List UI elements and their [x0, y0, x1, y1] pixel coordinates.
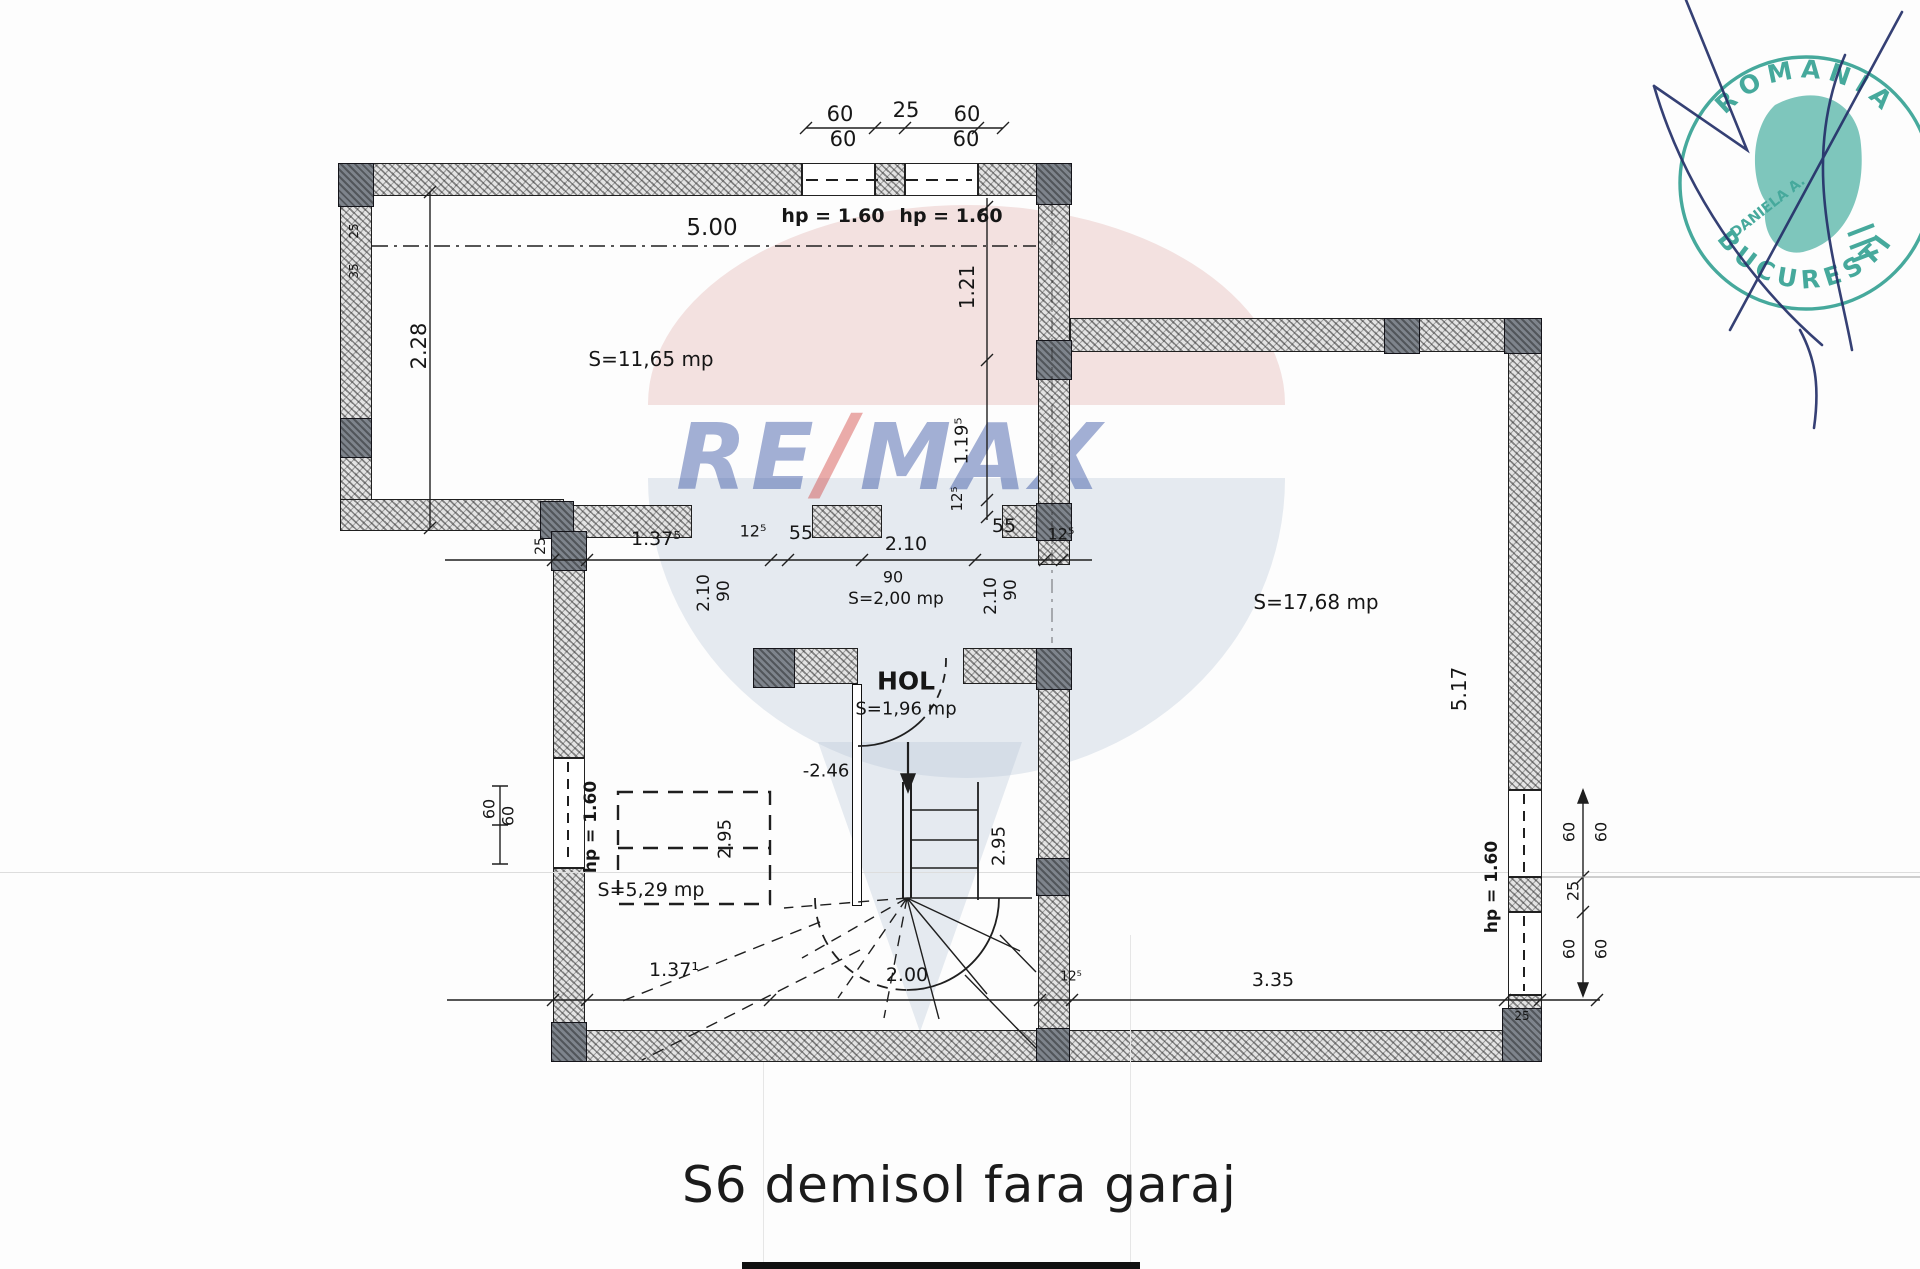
stamp-emblem [1755, 95, 1862, 252]
column-top-left [338, 163, 374, 207]
room-label-s1768: S=17,68 mp [1253, 590, 1378, 614]
dim-label: 25 [347, 223, 361, 238]
dim-ticks-vertical-center [981, 201, 993, 523]
room-label-s196: S=1,96 mp [855, 699, 956, 720]
remax-logo-slash: / [818, 392, 860, 514]
window-top-1 [802, 163, 875, 196]
dim-label: 12⁵ [1048, 525, 1075, 544]
dim-label: hp = 1.60 [899, 205, 1002, 227]
dim-label: 25 [1564, 881, 1583, 901]
svg-text:BUCURESTI: BUCURESTI [1712, 225, 1901, 295]
dim-label: 2.28 [407, 323, 431, 370]
dim-label: hp = 1.60 [1482, 841, 1502, 933]
dim-label: 12⁵ [948, 486, 966, 511]
svg-text:ROMANIA: ROMANIA [1709, 54, 1903, 119]
dim-label: 1.37¹ [649, 959, 699, 981]
wall-hall-north-right [963, 648, 1040, 684]
dim-label: 1.37⁵ [631, 528, 681, 550]
wall-bottom-upper-left-room [340, 499, 564, 531]
column-top-right-1 [1384, 318, 1420, 354]
wall-pier-top-windows [875, 163, 905, 196]
dim-label: 3.35 [1252, 969, 1294, 991]
dim-label: 5.00 [686, 215, 737, 241]
wall-central-lower [1038, 648, 1070, 1062]
column-lower-left-top [551, 531, 587, 571]
dim-label: 60 [480, 799, 499, 819]
stair-treads-straight [911, 810, 978, 868]
scan-fold-line-horizontal [0, 872, 1920, 873]
scan-fold-line-vertical-right [1130, 935, 1131, 1269]
room-label-s529: S=5,29 mp [598, 879, 705, 901]
dim-label: 55 [789, 522, 813, 544]
dim-label: 90 [883, 568, 903, 587]
dim-label: 2.95 [989, 826, 1010, 866]
dim-label: 35 [347, 263, 361, 278]
room-label-s1165: S=11,65 mp [588, 347, 713, 371]
wall-mid-segment-2 [812, 505, 882, 538]
dim-label: 1.19⁵ [952, 417, 973, 464]
signature [1654, 0, 1902, 428]
dim-label: 2.10 [981, 577, 1001, 615]
wall-right-upper [1508, 318, 1542, 790]
stamp-emblem-bars [1848, 225, 1878, 261]
dim-label: 12⁵ [740, 522, 767, 541]
wall-top-right-room [1070, 318, 1542, 352]
stair-winder-treads-left [784, 898, 907, 1018]
column-central-3 [1036, 648, 1072, 690]
remax-balloon-watermark-tip [818, 742, 1022, 1032]
remax-logo-re: RE [676, 404, 818, 511]
column-central-4 [1036, 858, 1070, 896]
plan-caption: S6 demisol fara garaj [682, 1156, 1237, 1214]
dim-label: 60 [953, 127, 980, 151]
dim-label: 2.95 [715, 819, 736, 859]
column-hall-north [753, 648, 795, 688]
stair-spine [903, 782, 911, 898]
stamp-ring [1680, 57, 1920, 309]
column-top-center [1036, 163, 1072, 205]
wall-top-right-stub [978, 163, 1040, 196]
dim-label: 5.17 [1447, 667, 1471, 712]
dim-label: 25 [533, 537, 549, 555]
dim-label: 55 [992, 515, 1016, 537]
window-right-1 [1508, 790, 1542, 877]
dim-label: 25 [1514, 1009, 1529, 1023]
door-arc-hall-solid [858, 720, 922, 746]
stamp-arc-top-text: ROMANIA [1709, 54, 1903, 119]
wall-top-upper-left-room [340, 163, 802, 196]
level-marker: -2.46 [803, 761, 850, 782]
dim-label: 12⁵ [1060, 970, 1082, 985]
dim-label: 60 [1560, 939, 1579, 959]
floor-plan-scan: RE/MAX [0, 0, 1920, 1269]
dim-label: 60 [954, 102, 981, 126]
window-right-2 [1508, 912, 1542, 995]
scan-edge-artifact [742, 1262, 1140, 1269]
dim-label: 90 [714, 580, 734, 602]
dim-label: 2.00 [886, 964, 928, 986]
dim-label: hp = 1.60 [581, 781, 601, 873]
window-top-2 [905, 163, 978, 196]
dim-label: 60 [830, 127, 857, 151]
dim-label: 60 [1592, 822, 1611, 842]
staircase [620, 782, 1036, 1060]
dim-ticks-bottom-row [547, 994, 1603, 1006]
room-label-hol: HOL [877, 667, 935, 696]
column-left-mid [340, 418, 372, 458]
room-label-s200: S=2,00 mp [848, 589, 944, 609]
dim-label: 60 [827, 102, 854, 126]
dim-label: 2.10 [885, 533, 927, 555]
remax-logo-watermark: RE/MAX [676, 392, 1276, 514]
stamp-arc-bottom-text: BUCURESTI [1712, 225, 1901, 295]
dim-label: 25 [893, 98, 920, 122]
round-stamp: ROMANIA BUCURESTI DANIELA A. [1680, 54, 1920, 309]
stamp-center-text: DANIELA A. [1728, 173, 1809, 241]
stair-winder-treads-right [907, 898, 1032, 1019]
dim-label: 60 [499, 806, 518, 826]
wall-pier-right-windows [1508, 877, 1542, 912]
column-bottom-left-corner [551, 1022, 587, 1062]
dim-label: hp = 1.60 [781, 205, 884, 227]
dim-label: 60 [1560, 822, 1579, 842]
column-top-right-corner [1504, 318, 1542, 354]
column-central-1 [1036, 340, 1072, 380]
entry-arrow-head [901, 774, 915, 792]
dim-label: 60 [1592, 939, 1611, 959]
dim-label: 90 [1001, 579, 1021, 601]
wall-left-upper [340, 163, 372, 531]
column-bottom-center [1036, 1028, 1070, 1062]
dim-label: 1.21 [955, 265, 979, 310]
dim-label: 2.10 [694, 574, 714, 612]
dim-ticks-middle-row [547, 554, 1068, 566]
